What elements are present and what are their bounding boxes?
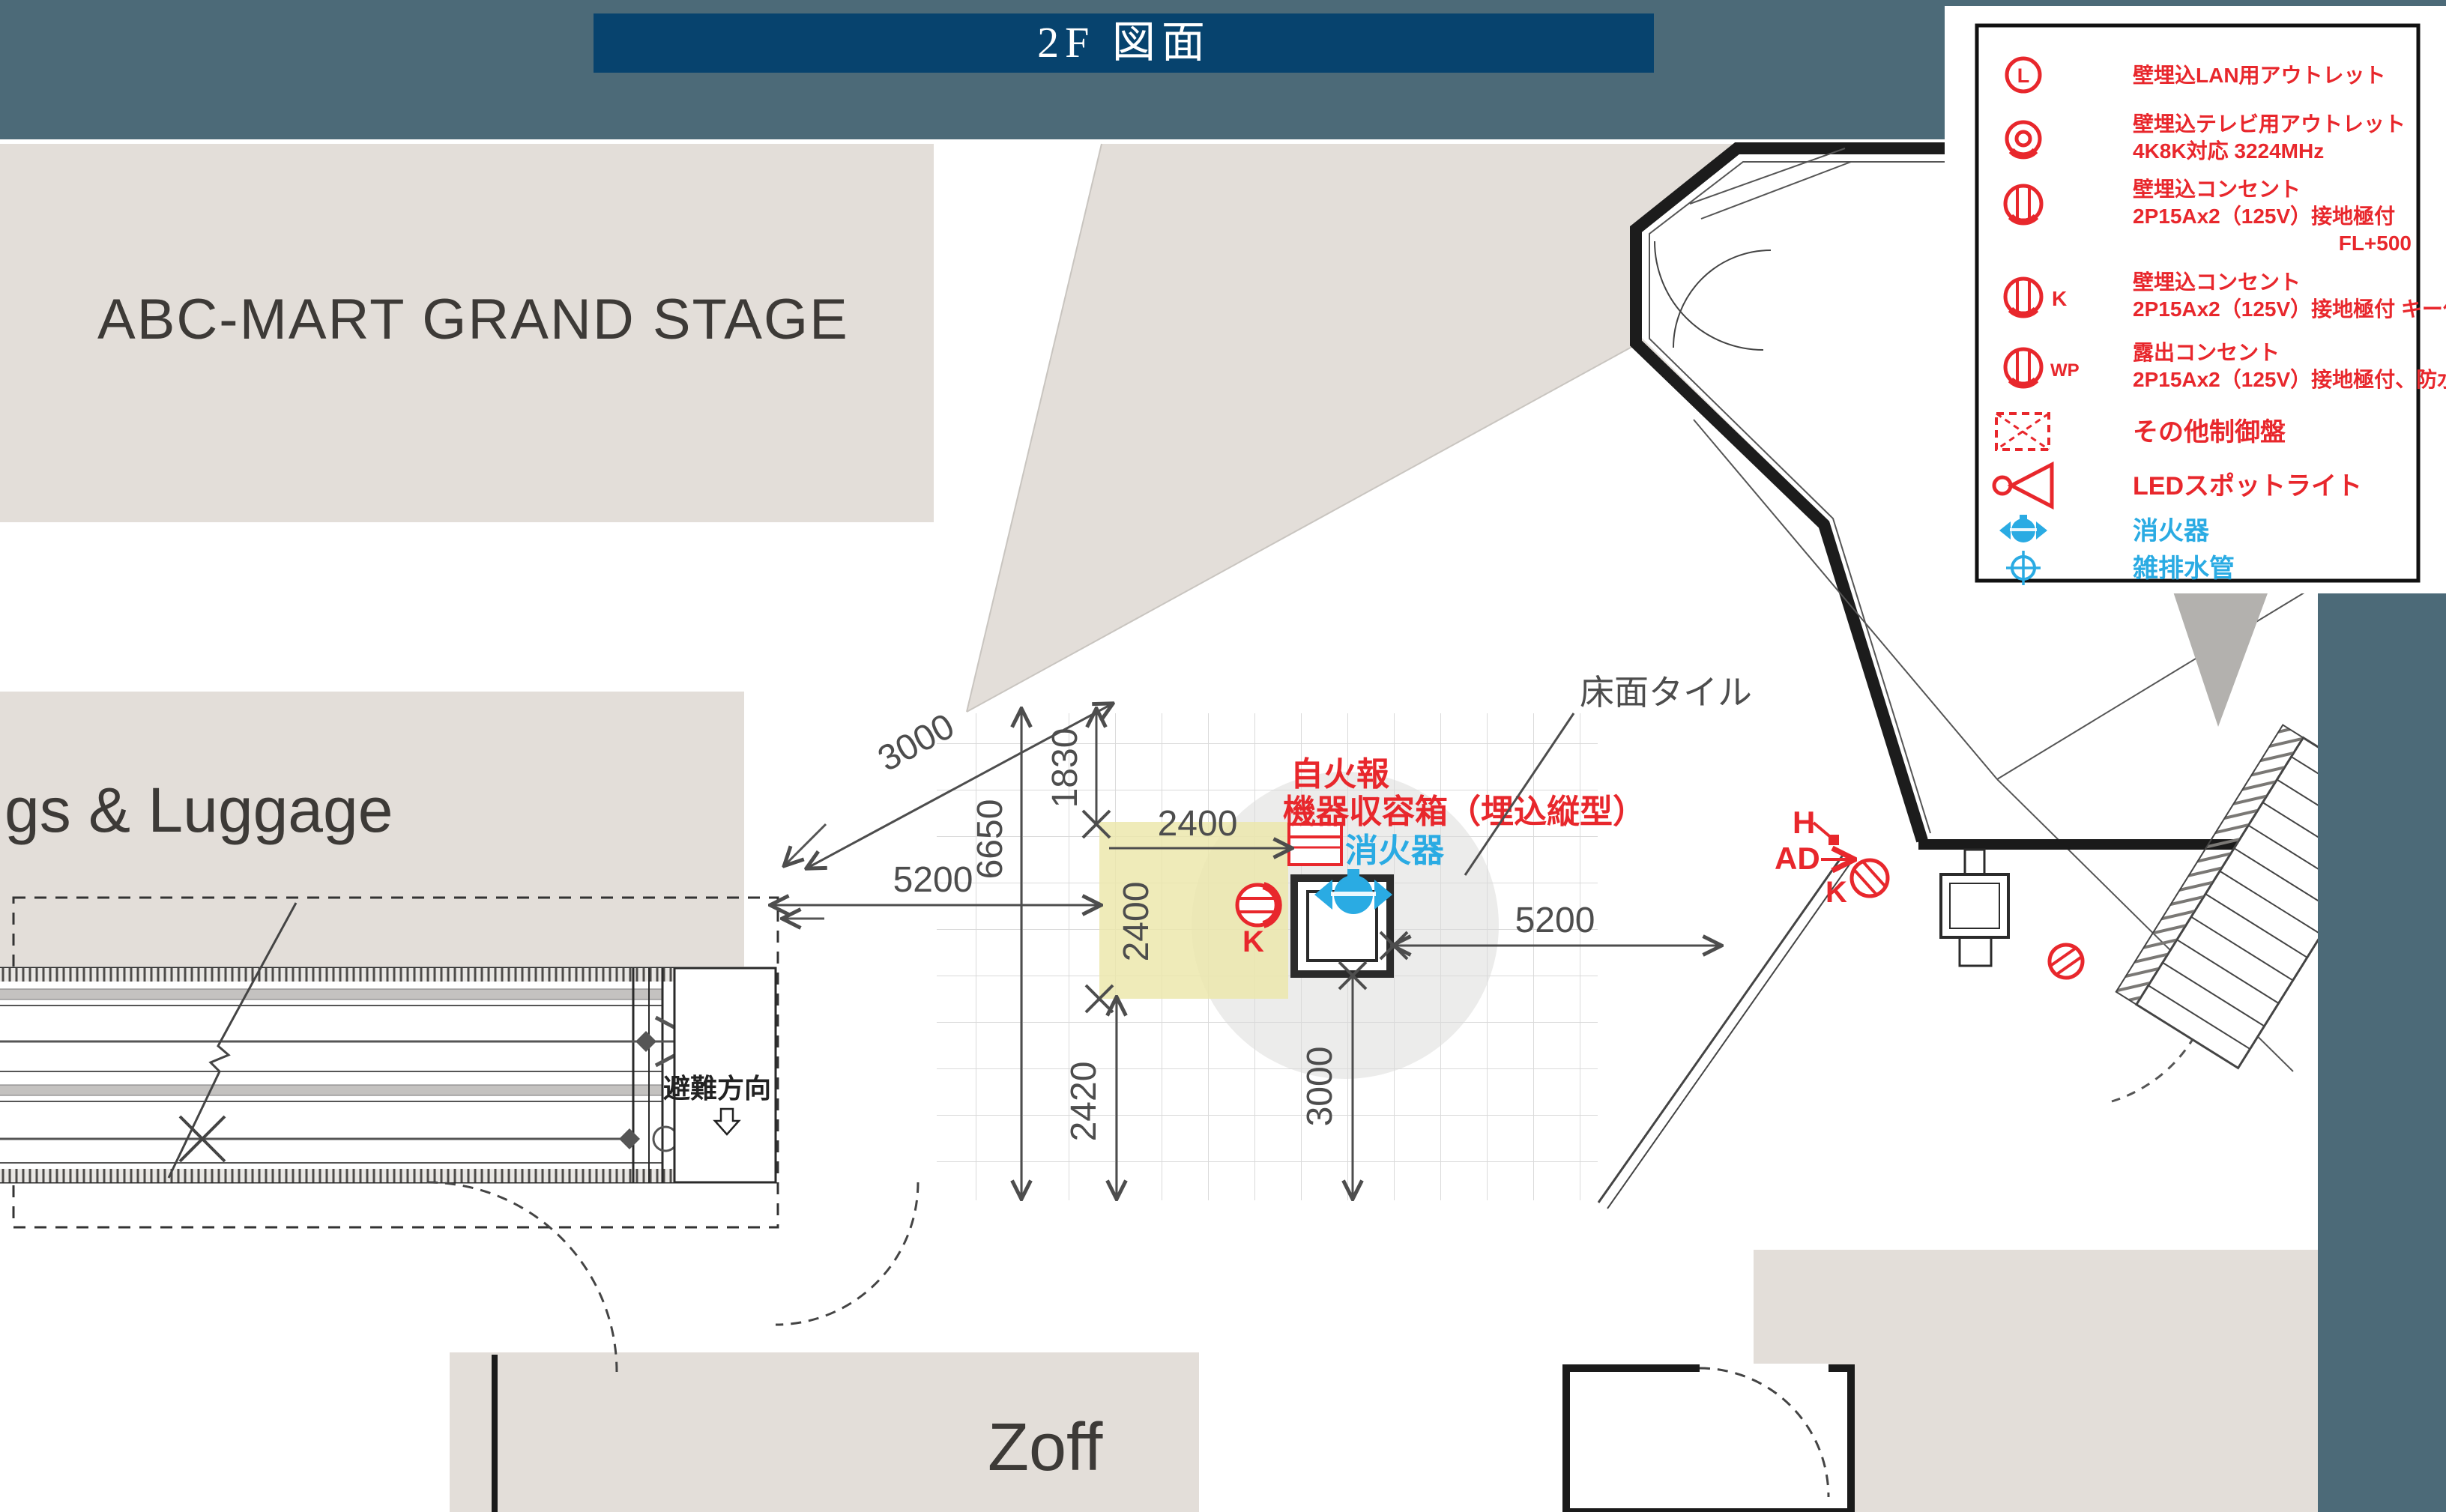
- fire-alarm-box-symbol: [1289, 824, 1341, 865]
- escalator-body: [0, 968, 678, 1182]
- floor-tile-label: 床面タイル: [1580, 673, 1752, 712]
- dim-2400-h: 2400: [1158, 804, 1238, 844]
- floor-plan-page: 避難方向 K 自火報: [0, 0, 2446, 1512]
- legend-label: LEDスポットライト: [2133, 471, 2362, 501]
- dim-3000-v: 3000: [1300, 1047, 1340, 1127]
- legend-panel: L 壁埋込LAN用アウトレット 壁埋込テレビ用アウトレット 4K8K対応 322…: [1945, 6, 2446, 593]
- h-label: H: [1793, 805, 1815, 840]
- legend-label: 2P15Ax2（125V）接地極付 キー付: [2133, 297, 2446, 321]
- floor-plan-canvas: 避難方向 K 自火報: [0, 0, 2446, 1512]
- legend-symbol-suffix: WP: [2050, 360, 2080, 381]
- dim-6650: 6650: [970, 799, 1010, 880]
- legend-label: その他制御盤: [2133, 418, 2286, 447]
- page-title: 2F 図面: [1037, 18, 1211, 67]
- right-margin: [2318, 589, 2446, 1512]
- legend-label: 消火器: [2133, 517, 2210, 545]
- store-label-luggage: gs & Luggage: [4, 775, 393, 845]
- evacuation-label: 避難方向: [663, 1073, 771, 1104]
- store-label-abc-mart: ABC-MART GRAND STAGE: [97, 288, 849, 351]
- fire-alarm-label-2: 機器収容箱（埋込縦型）: [1283, 793, 1646, 830]
- tile-floor: [937, 713, 1598, 1200]
- title-bar: 2F 図面: [594, 13, 1654, 73]
- legend-label: 2P15Ax2（125V）接地極付、防水型: [2133, 367, 2446, 391]
- ad-label: AD: [1775, 841, 1820, 876]
- store-label-zoff: Zoff: [988, 1410, 1103, 1485]
- legend-label: 壁埋込コンセント: [2133, 270, 2301, 294]
- dim-2400-v: 2400: [1117, 882, 1156, 962]
- outlet-k-symbol: [1237, 885, 1278, 925]
- dim-5200-left: 5200: [893, 860, 973, 900]
- legend-label: 壁埋込テレビ用アウトレット: [2133, 112, 2406, 136]
- legend-note-fl500: FL+500: [2339, 232, 2412, 255]
- dim-2420: 2420: [1064, 1062, 1104, 1142]
- k-label-right: K: [1826, 876, 1847, 909]
- legend-label: 露出コンセント: [2133, 341, 2280, 364]
- legend-label: 雑排水管: [2132, 554, 2235, 583]
- bottom-right-room: [1566, 1368, 1851, 1512]
- legend-label: 2P15Ax2（125V）接地極付: [2133, 204, 2395, 228]
- dim-1830: 1830: [1045, 728, 1085, 808]
- legend-label: 4K8K対応 3224MHz: [2133, 139, 2324, 163]
- legend-symbol-suffix: K: [2052, 287, 2067, 310]
- lan-outlet-icon-letter: L: [2017, 64, 2030, 87]
- dim-5200-right: 5200: [1515, 901, 1595, 940]
- legend-label: 壁埋込LAN用アウトレット: [2133, 64, 2386, 87]
- fire-alarm-label-1: 自火報: [1290, 756, 1389, 793]
- legend-label: 壁埋込コンセント: [2133, 178, 2301, 201]
- extinguisher-label-plan: 消火器: [1345, 832, 1445, 869]
- outlet-k-label: K: [1242, 925, 1264, 958]
